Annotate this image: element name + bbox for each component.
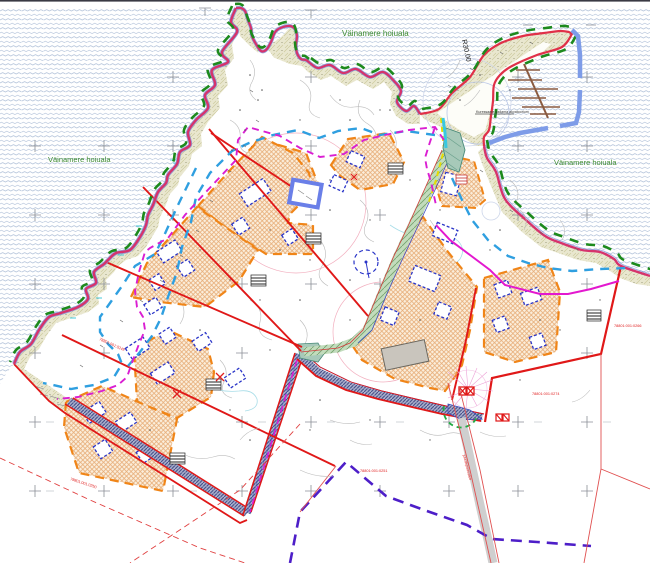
- svg-text:Väinamere hoiuala: Väinamere hoiuala: [48, 155, 111, 164]
- svg-text:Väinamere hoiuala: Väinamere hoiuala: [342, 29, 409, 38]
- svg-text:Väinamere hoiuala: Väinamere hoiuala: [554, 158, 617, 167]
- svg-text:Kuressaare sadama akvatoorium: Kuressaare sadama akvatoorium: [476, 110, 529, 114]
- svg-text:78801:001:0266: 78801:001:0266: [614, 324, 641, 328]
- svg-text:78801:001:0274: 78801:001:0274: [532, 392, 559, 396]
- svg-text:78801:001:0251: 78801:001:0251: [360, 469, 387, 473]
